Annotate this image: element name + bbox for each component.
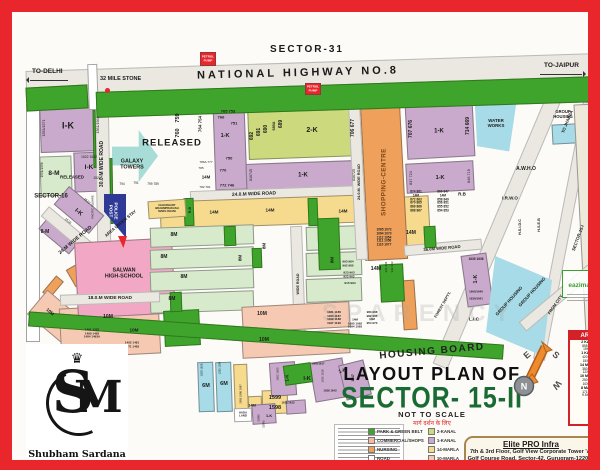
map-label: 760 bbox=[175, 128, 181, 137]
map-legend: PARK & GREEN BELTCOMMERCIAL/SHOPSNURSING… bbox=[368, 428, 474, 470]
map-label: 1635 1636 bbox=[468, 258, 483, 262]
legend-swatch bbox=[428, 437, 435, 444]
map-label: 706 677 bbox=[351, 119, 357, 137]
map-label: 874 861 14M 872 863 870 865 869 866 868 … bbox=[410, 191, 422, 214]
map-label: 1-K bbox=[298, 172, 308, 179]
map-label: 8M bbox=[161, 255, 168, 261]
map-label: POLICE POST bbox=[108, 202, 119, 219]
legend-swatch bbox=[368, 455, 375, 462]
map-label: 799 789 bbox=[147, 183, 159, 187]
legend-item: SCHOOL & N.S bbox=[368, 464, 424, 470]
map-label: SALWAN HIGH-SCHOOL bbox=[105, 268, 143, 281]
legend-label: 10-MARLA bbox=[437, 456, 459, 461]
compass-w: W bbox=[550, 379, 563, 392]
map-label: 785 bbox=[198, 167, 203, 171]
area-reference-box: AREA 2 KANAL855SQM.19X45M1 KANAL420SQM.1… bbox=[568, 330, 600, 426]
map-label: 14M bbox=[202, 174, 211, 179]
map-label: RELEASED bbox=[60, 174, 84, 179]
map-label: 1181 1186 1180 1187 1199 1188 1197 1190 bbox=[327, 311, 341, 325]
map-label: 1602 1605 bbox=[276, 367, 279, 380]
legend-label: 8-MARLA bbox=[437, 465, 457, 470]
map-label: 10M bbox=[257, 312, 267, 318]
map-label: 846 715 bbox=[467, 169, 471, 183]
legend-label: SCHOOL & N.S bbox=[377, 465, 409, 470]
map-label: 10M bbox=[259, 338, 269, 344]
map-label: 993 984 992 985 bbox=[342, 260, 353, 267]
legend-label: NURSING bbox=[377, 447, 397, 452]
brand-name: Shubham Sardana bbox=[26, 449, 128, 460]
map-label: 14M bbox=[210, 209, 219, 214]
map-label: I-K bbox=[85, 164, 94, 172]
elite-pro-infra-box: Elite PRO Infra 7th & 3rd Floor, Golf Vi… bbox=[464, 436, 598, 470]
map-label: 1829 1826 bbox=[200, 364, 203, 377]
map-label: 6M bbox=[202, 383, 210, 389]
map-label: 14M bbox=[339, 208, 348, 213]
area-row: 8 MARLA171SQM.9.5X18 M bbox=[570, 387, 600, 397]
map-label: 782 781 bbox=[199, 186, 210, 190]
sector-31-label: SECTOR-31 bbox=[270, 44, 344, 55]
map-label: 18.0.M WIDE ROAD bbox=[88, 296, 132, 302]
eazimaps-tagline-lines bbox=[567, 294, 600, 301]
map-frame: PETROL PUMPPETROL PUMPI-K1553/15711561/1… bbox=[0, 0, 600, 470]
map-label: 8M bbox=[181, 275, 188, 281]
legend-label: ROAD bbox=[377, 456, 390, 461]
map-label: 1-K bbox=[266, 414, 272, 418]
park-block bbox=[252, 248, 263, 268]
legend-item: 8-MARLA bbox=[428, 464, 474, 470]
map-label: 836725 bbox=[352, 169, 356, 181]
map-label: 30.0-M WIDE ROAD bbox=[100, 141, 106, 187]
map-label: WIDE ROAD bbox=[296, 274, 300, 295]
greenbelt-left bbox=[25, 84, 88, 111]
map-label: 983 968 982 965 14M 954 973 bbox=[367, 311, 378, 325]
map-label: 791 bbox=[133, 182, 138, 186]
legend-item: NURSING bbox=[368, 446, 424, 453]
map-label: 1561/1563 bbox=[96, 117, 100, 134]
map-label: 941 944 bbox=[385, 262, 389, 273]
not-to-scale-label: NOT TO SCALE bbox=[372, 410, 492, 419]
plot-block-8m bbox=[150, 268, 255, 292]
map-label: 816745 bbox=[249, 169, 253, 181]
map-label: 14M bbox=[248, 404, 256, 409]
area-row: 10 MARLA250SQM.10X23 M bbox=[570, 375, 600, 385]
map-label: 714 669 bbox=[466, 117, 472, 135]
map-label: 8M bbox=[171, 233, 178, 239]
legend-swatch bbox=[428, 428, 435, 435]
legend-item: PARK & GREEN BELT bbox=[368, 428, 424, 435]
map-label: 707 676 bbox=[409, 120, 415, 138]
legend-column-left: PARK & GREEN BELTCOMMERCIAL/SHOPSNURSING… bbox=[368, 428, 424, 470]
area-box-rows: 2 KANAL855SQM.19X45M1 KANAL420SQM.15X28 … bbox=[570, 340, 600, 399]
map-label: PETROL PUMP bbox=[307, 85, 319, 92]
map-label: 837 724 bbox=[409, 171, 413, 185]
legend-label: 14-MARLA bbox=[437, 447, 459, 452]
disclaimer-footer-line bbox=[338, 462, 400, 464]
area-box-title: AREA bbox=[570, 332, 600, 340]
map-label: 1606/1617 bbox=[311, 362, 324, 365]
map-label: 8M bbox=[237, 255, 242, 261]
map-label: 692 bbox=[250, 132, 256, 140]
map-label: PETROL PUMP bbox=[202, 55, 214, 62]
map-label: 750 bbox=[226, 157, 233, 162]
legend-item: ROAD bbox=[368, 455, 424, 462]
map-label: 689A bbox=[272, 121, 276, 130]
sm-monogram: S M bbox=[26, 344, 128, 436]
map-label: 860 847 14M 858 849 856 851 855 852 854 … bbox=[437, 191, 449, 214]
map-label: 1606/1646 bbox=[469, 290, 483, 293]
map-label: 8M bbox=[329, 257, 334, 263]
map-label: 942 943 bbox=[391, 262, 395, 273]
area-row-d: 9.5X18 M bbox=[570, 394, 600, 397]
map-label: 14M bbox=[371, 266, 382, 272]
map-label: 1553/1571 bbox=[42, 120, 46, 137]
eazimaps-credit: eazimaps™ bbox=[562, 270, 600, 298]
map-label: 1-K bbox=[473, 275, 479, 284]
map-label: 691 bbox=[257, 128, 263, 136]
map-label: 14M 1095 1092 1094 1093 bbox=[348, 319, 362, 330]
map-label: 690 bbox=[264, 125, 270, 133]
map-label: 1630/1641 bbox=[469, 297, 483, 300]
map-label: 8-M bbox=[41, 230, 50, 236]
map-label: 1588X bbox=[257, 414, 260, 422]
map-label: 794 bbox=[119, 183, 124, 187]
milestone-dot bbox=[105, 88, 110, 93]
area-row: 14 MARLA350SQM.12X23 M bbox=[570, 364, 600, 374]
west-arrow-icon bbox=[30, 80, 68, 81]
map-label: R.B bbox=[188, 207, 192, 213]
map-label: 1-K bbox=[284, 374, 289, 381]
legend-swatch bbox=[368, 428, 375, 435]
map-label: 1065 1072 1064 1073 1112 1054 1111 1056 … bbox=[376, 229, 391, 248]
area-row: 1 KANAL420SQM.15X28 M bbox=[570, 352, 600, 362]
map-label: 10M bbox=[130, 327, 139, 332]
map-label: R.B bbox=[458, 191, 466, 196]
park-block bbox=[224, 226, 237, 246]
legend-swatch bbox=[368, 437, 375, 444]
area-row: 2 KANAL855SQM.19X45M bbox=[570, 341, 600, 351]
monogram-m: M bbox=[74, 372, 123, 423]
milestone-label: 32 MILE STONE bbox=[100, 76, 141, 82]
legend-swatch bbox=[428, 464, 435, 470]
infra-address-2: Golf Course Road, Sector-42, Gurugram-12… bbox=[466, 456, 596, 463]
map-label: L.I.C bbox=[469, 316, 479, 321]
map-label: 6M bbox=[220, 381, 228, 387]
map-label: 915 994 bbox=[344, 282, 355, 286]
map-label: 1285 1294 bbox=[218, 362, 221, 375]
map-label: 1599 bbox=[269, 395, 281, 401]
legend-label: COMMERCIAL/SHOPS bbox=[377, 438, 424, 443]
east-arrow-icon bbox=[540, 74, 582, 75]
legend-swatch bbox=[428, 455, 435, 462]
legend-swatch bbox=[368, 446, 375, 453]
map-label: 1491 1522 1490 1493 1484 1493A bbox=[84, 329, 100, 340]
park-block bbox=[423, 226, 436, 249]
map-label: WATER WORKS bbox=[488, 118, 505, 128]
map-label: 10M bbox=[103, 315, 113, 321]
map-label: 1611/1612 bbox=[281, 401, 294, 404]
map-label: 1636 1618 bbox=[321, 369, 324, 382]
map-label: 14M bbox=[406, 231, 416, 237]
map-label: 8-M bbox=[48, 170, 59, 178]
map-label: 1995 1996 1997 bbox=[239, 384, 242, 403]
map-label: 1598 bbox=[269, 405, 281, 411]
map-label: 24.0.M. WIDE ROAD bbox=[357, 164, 361, 200]
map-label: 2-K bbox=[306, 127, 317, 135]
shubham-sardana-logo: ♛ S M Shubham Sardana bbox=[26, 344, 128, 468]
map-label: 1-K bbox=[436, 175, 445, 181]
map-label: 751 bbox=[231, 122, 238, 127]
map-label: A.W.H.O bbox=[516, 167, 536, 173]
map-label: 1-K bbox=[434, 128, 444, 135]
map-label: 786A 777 bbox=[199, 161, 212, 165]
infra-name: Elite PRO Infra bbox=[466, 440, 596, 449]
map-label: 923 963 922 962 bbox=[343, 271, 354, 278]
map-label: 14M bbox=[266, 207, 275, 212]
compass-s: S bbox=[550, 349, 561, 361]
map-label: 8M bbox=[169, 297, 176, 303]
map-label: CHAUDHARY BRAHMPRAKASH MARG DHANI bbox=[155, 204, 178, 214]
to-delhi-label: TO-DELHI bbox=[32, 68, 63, 75]
map-label: 1589X bbox=[262, 420, 265, 428]
map-label: RELEASED bbox=[142, 137, 202, 148]
to-jaipur-label: TO-JAIPUR bbox=[544, 62, 579, 69]
map-label: GALAXY TOWERS bbox=[120, 159, 144, 172]
map-label: I.R.W.O bbox=[502, 195, 518, 200]
map-label: 8M bbox=[261, 243, 266, 249]
legend-item: 2-KANAL bbox=[428, 428, 474, 435]
map-label: 764 754 bbox=[197, 116, 202, 132]
legend-item: COMMERCIAL/SHOPS bbox=[368, 437, 424, 444]
map-label: 759 bbox=[175, 113, 181, 122]
map-label: 772 746 bbox=[220, 184, 234, 189]
map-label: H.S.E.B bbox=[537, 218, 541, 232]
map-label: PACIFIC SQUARE bbox=[91, 195, 94, 218]
map-label: 770 bbox=[220, 169, 227, 174]
legend-label: 2-KANAL bbox=[437, 429, 456, 434]
map-label: I-K bbox=[303, 376, 310, 382]
map-label: 765 753 bbox=[221, 110, 235, 115]
map-label: 766 bbox=[218, 116, 225, 121]
compass-e: E bbox=[521, 349, 532, 361]
compass-arrow-shaft bbox=[530, 347, 545, 378]
eazimaps-logo: eazimaps bbox=[568, 282, 597, 289]
plot-block-8m bbox=[150, 224, 255, 248]
legend-label: PARK & GREEN BELT bbox=[377, 429, 423, 434]
map-label: 1551/1556 bbox=[41, 162, 45, 177]
map-label: 689 bbox=[279, 120, 285, 128]
legend-swatch bbox=[368, 464, 375, 470]
map-label: 1522 1532 bbox=[81, 155, 97, 159]
map-label: I-K bbox=[62, 121, 74, 132]
map-label: H.S.I.D.C bbox=[518, 219, 522, 235]
legend-label: 1-KANAL bbox=[437, 438, 456, 443]
infra-address-1: 7th & 3rd Floor, Golf View Corporate Tow… bbox=[466, 449, 596, 456]
map-label: HUDA LAND bbox=[239, 412, 247, 419]
compass-n: N bbox=[521, 382, 528, 392]
map-label: SHOPPING-CENTRE bbox=[380, 148, 387, 216]
map-label: SECTOR-16 bbox=[34, 193, 68, 200]
legend-swatch bbox=[428, 446, 435, 453]
map-label: 1-K bbox=[221, 133, 230, 139]
